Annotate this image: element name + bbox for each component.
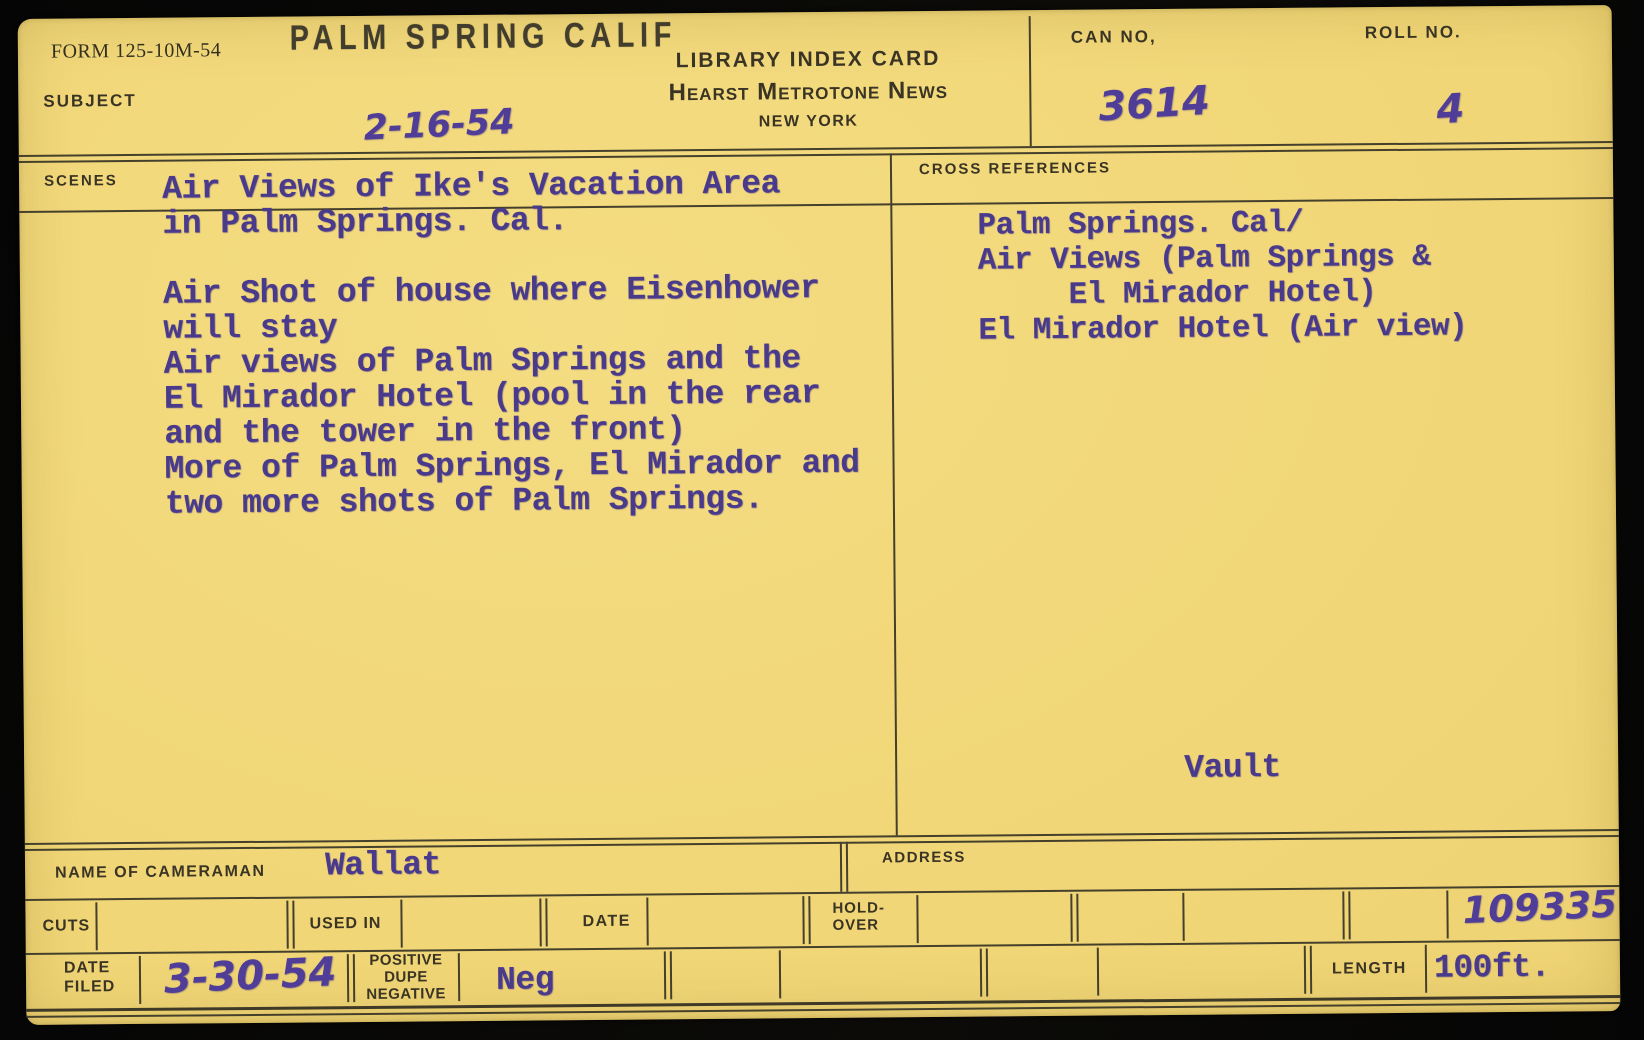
cross-references-typed-text: Palm Springs. Cal/ Air Views (Palm Sprin… xyxy=(977,204,1467,348)
cell-divider xyxy=(1070,894,1078,942)
header-bottom-rule xyxy=(19,141,1613,163)
date-label: DATE xyxy=(582,913,631,931)
cell-divider xyxy=(1425,945,1427,993)
subject-label: SUBJECT xyxy=(43,91,137,112)
used-in-label: USED IN xyxy=(309,915,381,934)
main-column-divider xyxy=(890,153,898,835)
print-type-label: POSITIVE DUPE NEGATIVE xyxy=(356,951,456,1003)
address-label: ADDRESS xyxy=(882,849,966,867)
form-number: FORM 125-10M-54 xyxy=(51,39,221,63)
cuts-label: CUTS xyxy=(42,917,90,935)
cell-divider xyxy=(980,949,988,997)
header-divider xyxy=(1029,16,1032,146)
org-title: LIBRARY INDEX CARD xyxy=(618,46,998,73)
cross-references-label: CROSS REFERENCES xyxy=(919,159,1111,178)
serial-number-handwritten: 109335 xyxy=(1462,882,1618,932)
cell-divider xyxy=(1182,893,1184,941)
cell-divider xyxy=(400,900,402,948)
card-bottom-rule xyxy=(26,995,1620,1018)
cell-divider xyxy=(1446,891,1448,939)
footer-top-rule xyxy=(25,829,1619,851)
roll-no-value: 4 xyxy=(1435,86,1466,134)
print-type-value: Neg xyxy=(496,962,554,998)
cell-divider xyxy=(1097,948,1099,996)
org-city: NEW YORK xyxy=(618,111,998,132)
length-label: LENGTH xyxy=(1332,960,1407,979)
holdover-label: HOLD- OVER xyxy=(832,899,885,933)
roll-no-label: ROLL NO. xyxy=(1365,22,1462,43)
date-filed-label: DATE FILED xyxy=(64,958,116,996)
date-filed-value-handwritten: 3-30-54 xyxy=(163,949,337,1002)
scenes-typed-text: Air Views of Ike's Vacation Area in Palm… xyxy=(162,166,860,522)
length-value: 100ft. xyxy=(1434,950,1550,986)
scan-background: PALM SPRING CALIF FORM 125-10M-54 SUBJEC… xyxy=(0,0,1644,1040)
cell-divider xyxy=(139,956,141,1004)
subject-date-handwritten: 2-16-54 xyxy=(363,102,515,149)
cell-divider xyxy=(916,895,918,943)
cell-divider xyxy=(95,902,97,950)
cell-divider xyxy=(347,954,355,1002)
scenes-label: SCENES xyxy=(44,172,118,190)
library-index-card: PALM SPRING CALIF FORM 125-10M-54 SUBJEC… xyxy=(18,5,1621,1025)
cell-divider xyxy=(779,950,781,998)
vault-note: Vault xyxy=(1184,750,1281,786)
can-no-label: CAN NO, xyxy=(1071,27,1157,48)
cameraman-value: Wallat xyxy=(325,847,441,883)
cameraman-label: NAME OF CAMERAMAN xyxy=(55,863,266,883)
org-name: Hearst Metrotone News xyxy=(618,76,998,107)
cell-divider xyxy=(1342,891,1350,939)
cell-divider xyxy=(646,898,648,946)
cell-divider xyxy=(539,898,547,946)
cell-divider xyxy=(286,901,294,949)
address-cell-divider xyxy=(840,842,848,892)
cell-divider xyxy=(664,951,672,999)
cell-divider xyxy=(802,896,810,944)
cell-divider xyxy=(458,953,460,1001)
row1-bottom-rule xyxy=(25,885,1619,901)
can-no-value: 3614 xyxy=(1097,78,1211,131)
cell-divider xyxy=(1304,946,1312,994)
